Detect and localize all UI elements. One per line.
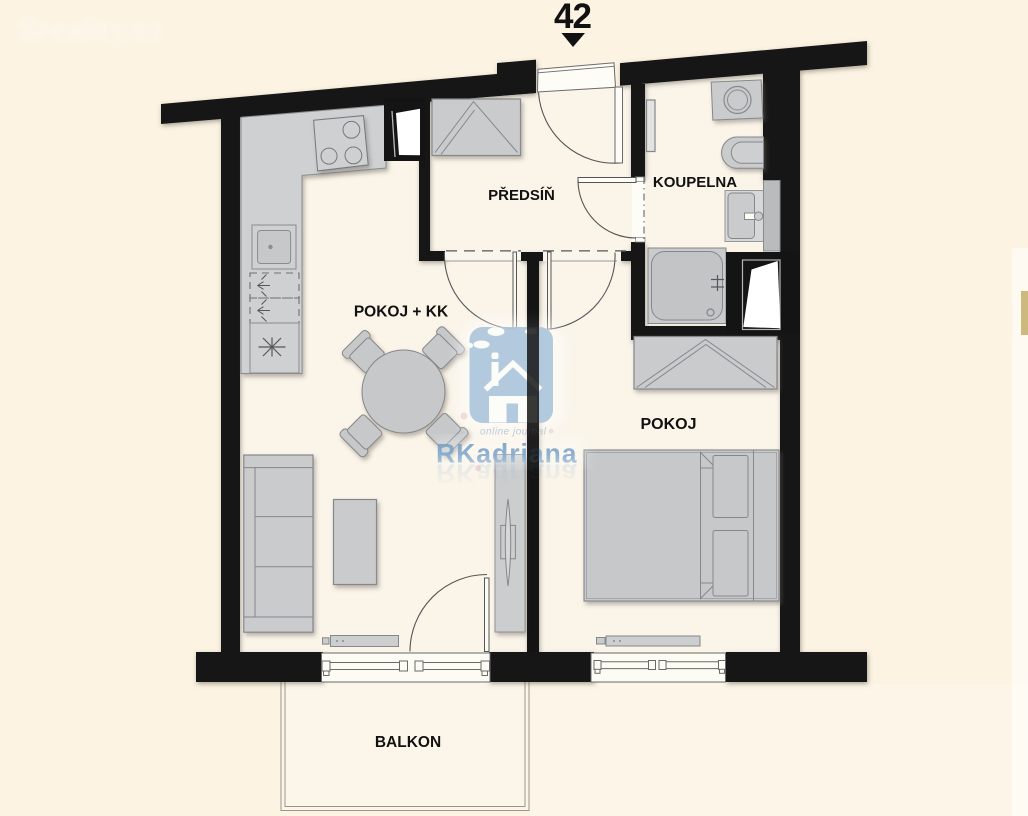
svg-text:BALKON: BALKON (375, 734, 441, 751)
svg-text:PŘEDSÍŇ: PŘEDSÍŇ (488, 186, 555, 204)
svg-text:KOUPELNA: KOUPELNA (653, 174, 737, 191)
svg-text:RKadriana: RKadriana (436, 459, 578, 489)
svg-text:POKOJ: POKOJ (640, 416, 696, 433)
svg-text:POKOJ + KK: POKOJ + KK (354, 304, 449, 321)
svg-text:Sreality.cz: Sreality.cz (18, 14, 164, 47)
svg-text:42: 42 (554, 0, 591, 36)
